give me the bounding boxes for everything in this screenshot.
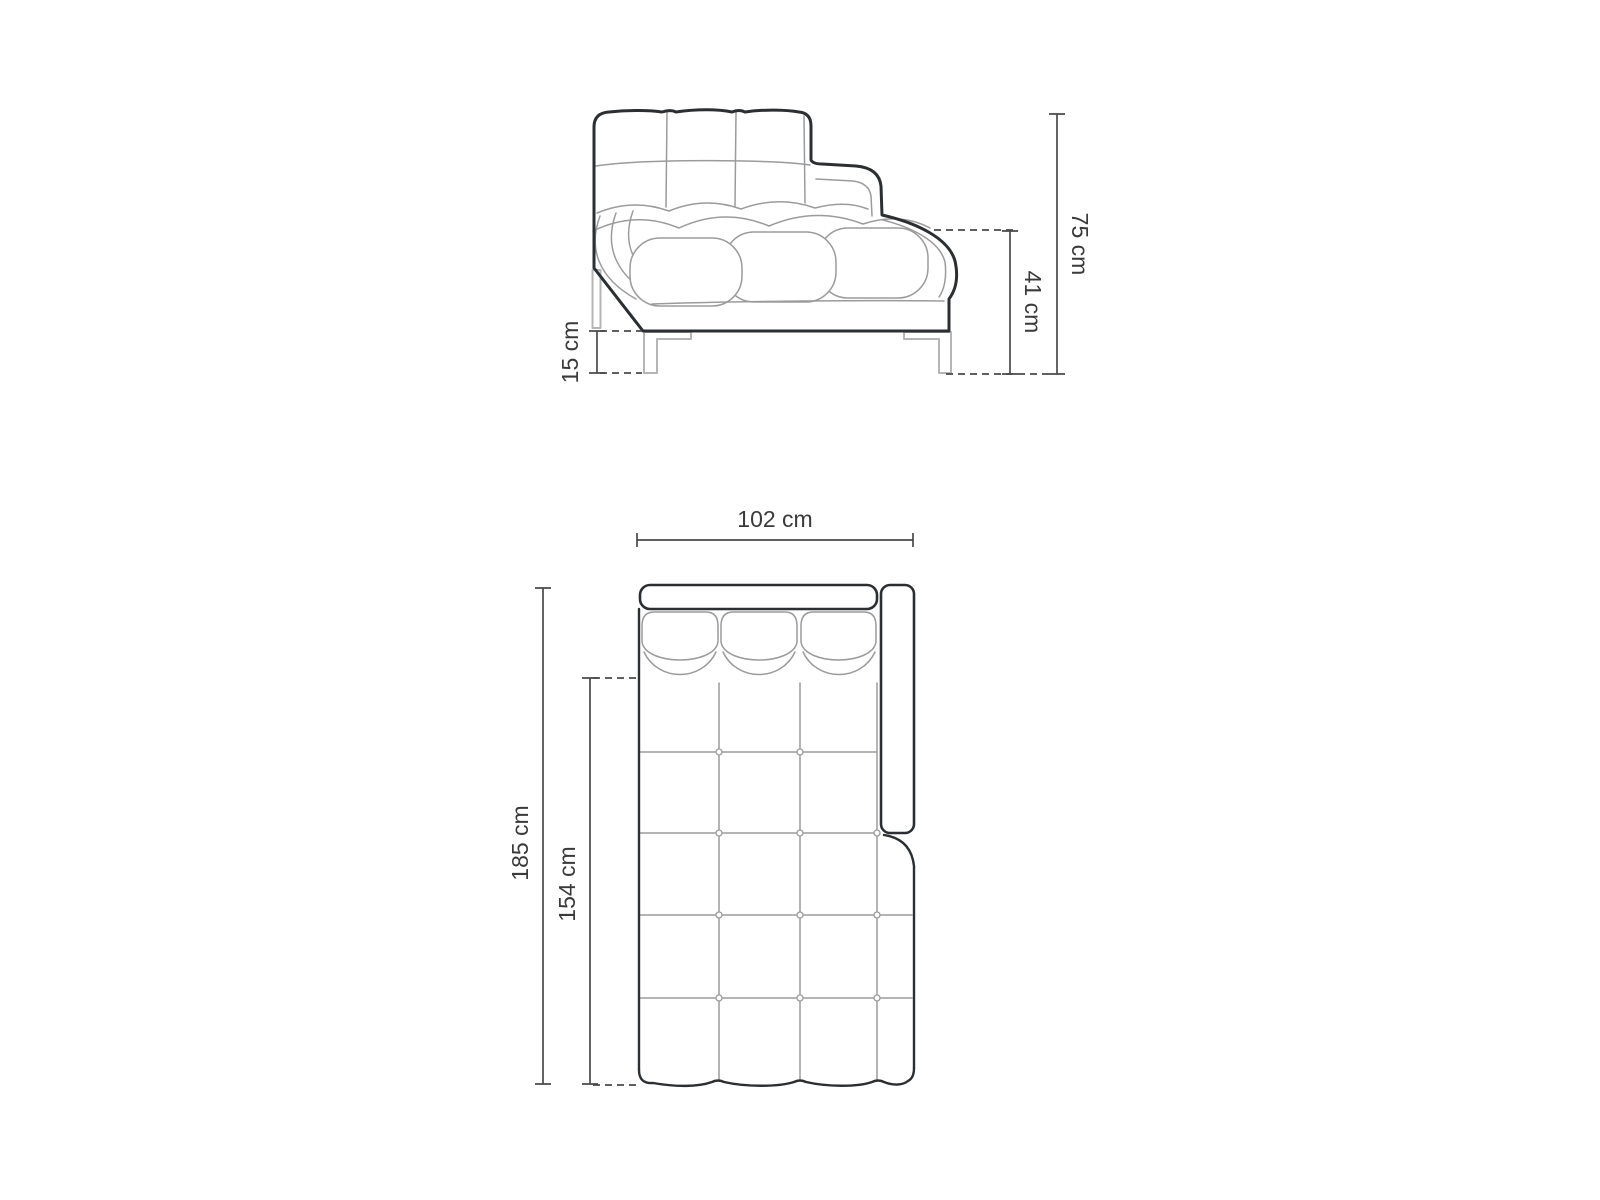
side-rear-leg bbox=[593, 270, 601, 328]
total-width-dimension-line bbox=[637, 533, 913, 547]
tuft-dot bbox=[716, 912, 722, 918]
back-cushions bbox=[642, 612, 876, 675]
tuft-dot bbox=[797, 995, 803, 1001]
tuft-dot bbox=[797, 830, 803, 836]
top-view-figure: 102 cm 185 cm 154 cm bbox=[507, 506, 914, 1086]
side-front-left-leg bbox=[644, 332, 691, 373]
total-width-dimension: 102 cm bbox=[637, 506, 913, 547]
total-length-dimension-line bbox=[535, 588, 551, 1084]
side-front-right-leg bbox=[904, 332, 951, 373]
total-height-dimension-line bbox=[1049, 114, 1065, 374]
backrest-right-cushion-edge bbox=[804, 116, 805, 203]
seat-tuft-arc-row-back bbox=[597, 202, 868, 213]
back-cushion-1 bbox=[642, 612, 718, 660]
base-clearance-dimension-line bbox=[589, 331, 605, 373]
sofa-dimension-diagram: 75 cm 41 cm 15 cm bbox=[0, 0, 1600, 1200]
body-right-edge bbox=[884, 835, 914, 1068]
backrest-tuft-horizontal bbox=[596, 161, 810, 166]
total-width-dimension-label: 102 cm bbox=[737, 506, 812, 532]
armrest-inner-line bbox=[816, 179, 872, 216]
backrest-band bbox=[640, 585, 877, 609]
tuft-dot bbox=[797, 749, 803, 755]
base-clearance-dimension: 15 cm bbox=[557, 321, 642, 384]
backrest-tuft-vertical-1 bbox=[666, 113, 667, 207]
total-height-dimension-label: 75 cm bbox=[1067, 213, 1093, 276]
chaise-length-dimension: 154 cm bbox=[554, 678, 640, 1085]
total-length-dimension: 185 cm bbox=[507, 588, 551, 1084]
tuft-buttons bbox=[716, 749, 880, 1001]
back-cushion-3 bbox=[801, 612, 876, 660]
tuft-dot bbox=[716, 830, 722, 836]
backrest-tuft-vertical-2 bbox=[735, 112, 736, 206]
tuft-dot bbox=[874, 830, 880, 836]
total-height-dimension: 75 cm bbox=[1049, 114, 1093, 374]
diagram-svg: 75 cm 41 cm 15 cm bbox=[0, 0, 1600, 1200]
tuft-dot bbox=[716, 749, 722, 755]
seat-height-dimension-label: 41 cm bbox=[1020, 271, 1046, 334]
chaise-length-dimension-label: 154 cm bbox=[554, 846, 580, 921]
back-cushion-2 bbox=[721, 612, 797, 660]
total-length-dimension-label: 185 cm bbox=[507, 805, 533, 880]
armrest-top-view bbox=[881, 585, 914, 833]
tuft-dot bbox=[797, 912, 803, 918]
tuft-dot bbox=[716, 995, 722, 1001]
body-bottom-edge bbox=[639, 1068, 914, 1086]
side-view-figure: 75 cm 41 cm 15 cm bbox=[557, 110, 1093, 384]
tuft-dot bbox=[874, 912, 880, 918]
base-clearance-dimension-label: 15 cm bbox=[557, 321, 583, 384]
chaise-length-dimension-line bbox=[582, 678, 598, 1084]
tuft-dot bbox=[874, 995, 880, 1001]
seat-height-dimension-line bbox=[1002, 231, 1018, 374]
seat-cushion-left bbox=[630, 238, 742, 306]
